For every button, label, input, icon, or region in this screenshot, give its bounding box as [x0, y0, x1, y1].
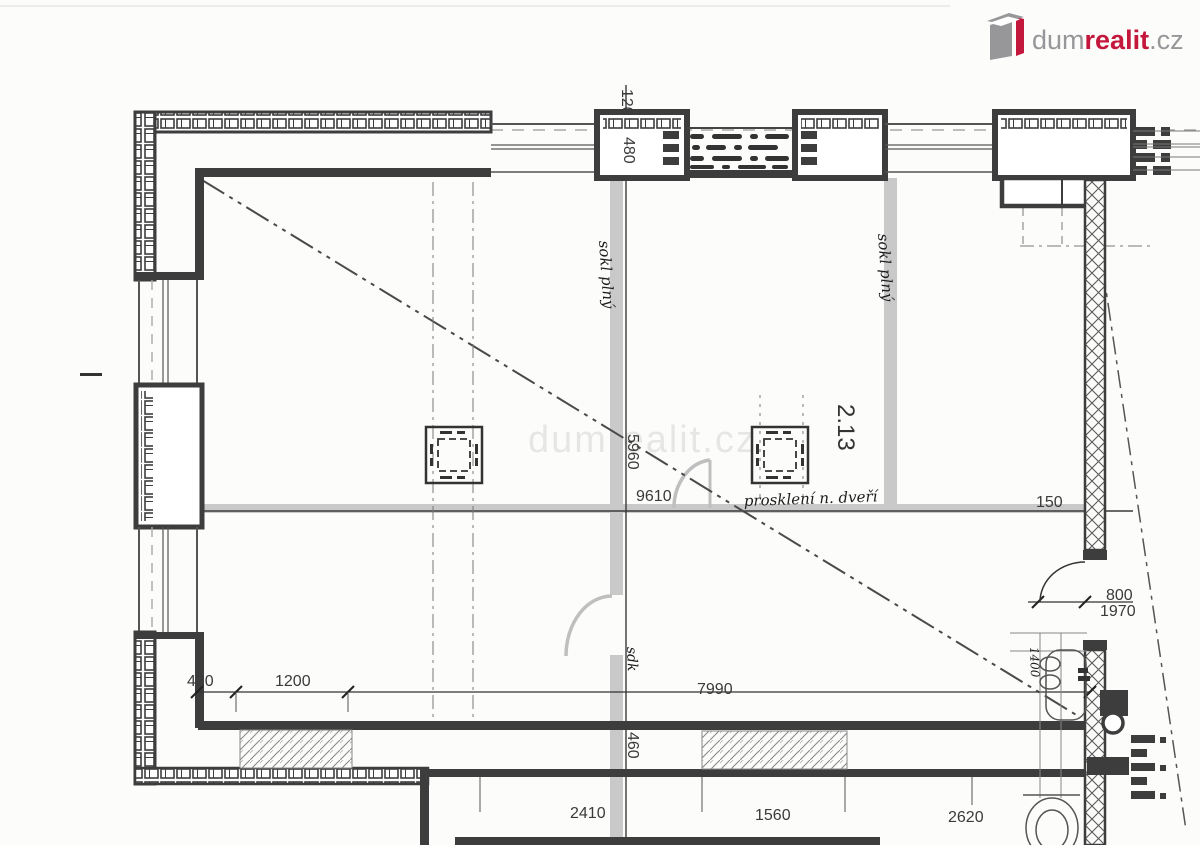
pipe-circle — [1103, 713, 1123, 733]
dim-label-2410: 2410 — [570, 805, 606, 822]
left-wall-pier-3 — [135, 632, 204, 784]
top-column-2 — [795, 112, 885, 178]
floor-plan-drawing: dumrealit.cz — [0, 0, 1200, 845]
washbasin — [1040, 650, 1090, 720]
wc-fixture — [1023, 795, 1080, 845]
hatched-infill-right — [702, 731, 847, 769]
dim-label-460: 460 — [624, 732, 641, 759]
dim-label-1400: 1400 — [1027, 647, 1042, 678]
note-sdk: sdk — [623, 647, 640, 672]
dim-label-2620: 2620 — [948, 809, 984, 826]
left-wall-pier-2 — [136, 385, 202, 527]
top-column-1 — [597, 112, 687, 178]
door-swing-arc — [1040, 562, 1085, 602]
floor-plan-scan: dumrealit.cz — [0, 0, 1200, 845]
left-window-2 — [139, 527, 197, 632]
dim-label-1970: 1970 — [1100, 603, 1136, 620]
ceiling-cassette-right — [752, 427, 808, 483]
dim-label-120: 120 — [618, 89, 635, 116]
note-sokl-left: sokl plný — [595, 240, 618, 310]
dim-label-150: 150 — [1036, 494, 1063, 511]
room-number: 2.13 — [832, 404, 859, 451]
dim-label-1560: 1560 — [755, 807, 791, 824]
top-right-comb — [1133, 127, 1200, 175]
dumrealit-logo-text: dumrealit.cz — [1032, 25, 1184, 55]
hatched-infill-left — [240, 730, 352, 768]
top-right-block — [995, 112, 1133, 206]
dim-label-9610: 9610 — [636, 488, 672, 505]
watermark-text: dumrealit.cz — [528, 419, 757, 461]
dim-label-7990: 7990 — [697, 681, 733, 698]
right-wall — [1083, 180, 1128, 845]
left-window-1 — [139, 280, 197, 385]
louver-segment — [687, 128, 795, 178]
margin-tick — [80, 373, 102, 376]
dumrealit-logo-icon — [987, 13, 1024, 60]
gray-door-arc-upper — [674, 460, 710, 508]
ceiling-cassette-left — [426, 427, 482, 483]
bottom-dim-line — [191, 686, 1096, 712]
dim-label-420: 420 — [187, 673, 214, 690]
dumrealit-logo: dumrealit.cz — [987, 13, 1184, 60]
dim-label-5960: 5960 — [624, 434, 641, 470]
dim-label-1200: 1200 — [275, 673, 311, 690]
below-wall-extensions — [480, 777, 972, 812]
dim-label-480: 480 — [620, 137, 637, 164]
top-window-2 — [885, 124, 995, 172]
dim-label-800: 800 — [1106, 587, 1133, 604]
gray-door-arc-lower — [566, 596, 612, 656]
top-left-wall — [135, 112, 491, 280]
note-sokl-right: sokl plný — [874, 233, 897, 303]
top-window-1 — [491, 124, 597, 172]
